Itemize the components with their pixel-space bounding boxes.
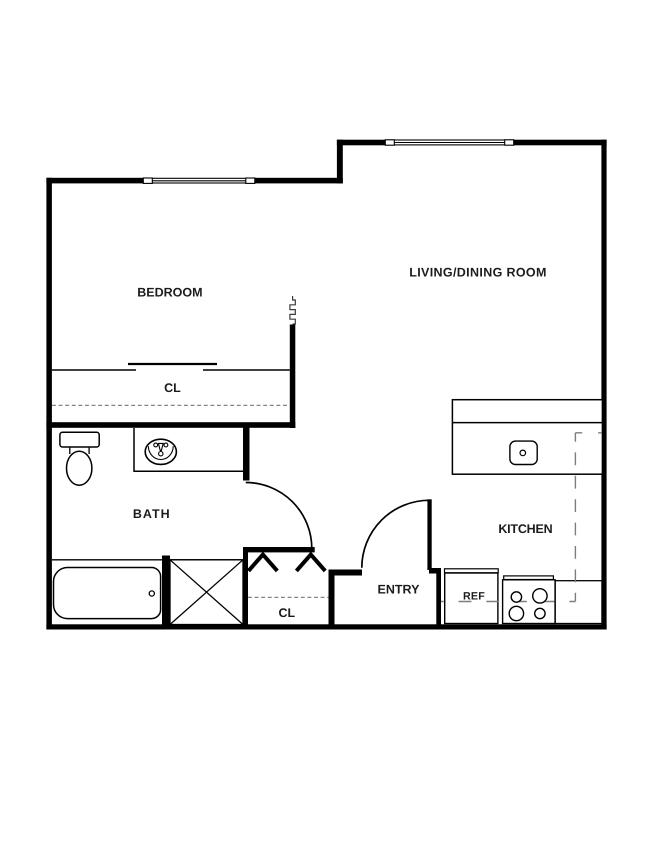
svg-text:REF: REF [463,591,485,603]
svg-text:LIVING/DINING ROOM: LIVING/DINING ROOM [409,265,547,279]
svg-text:CL: CL [278,606,295,620]
svg-text:BEDROOM: BEDROOM [137,285,202,299]
svg-text:CL: CL [164,381,181,395]
svg-text:ENTRY: ENTRY [378,583,421,597]
svg-text:BATH: BATH [133,507,171,521]
svg-text:KITCHEN: KITCHEN [498,522,552,536]
